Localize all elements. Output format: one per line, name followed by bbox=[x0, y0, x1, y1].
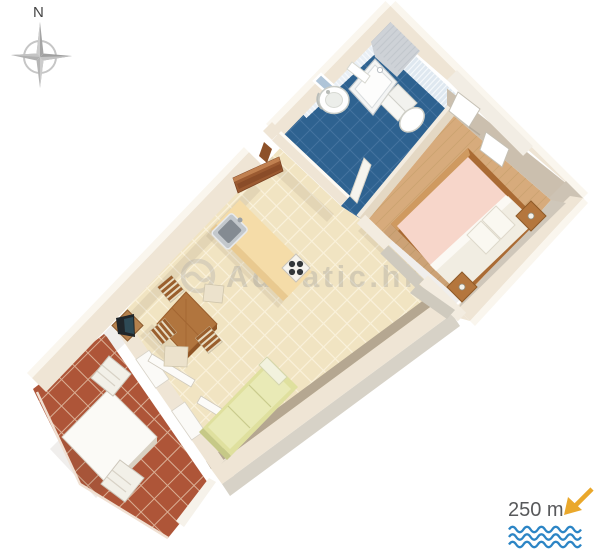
svg-text:N: N bbox=[33, 4, 44, 21]
svg-text:250 m: 250 m bbox=[508, 499, 564, 521]
